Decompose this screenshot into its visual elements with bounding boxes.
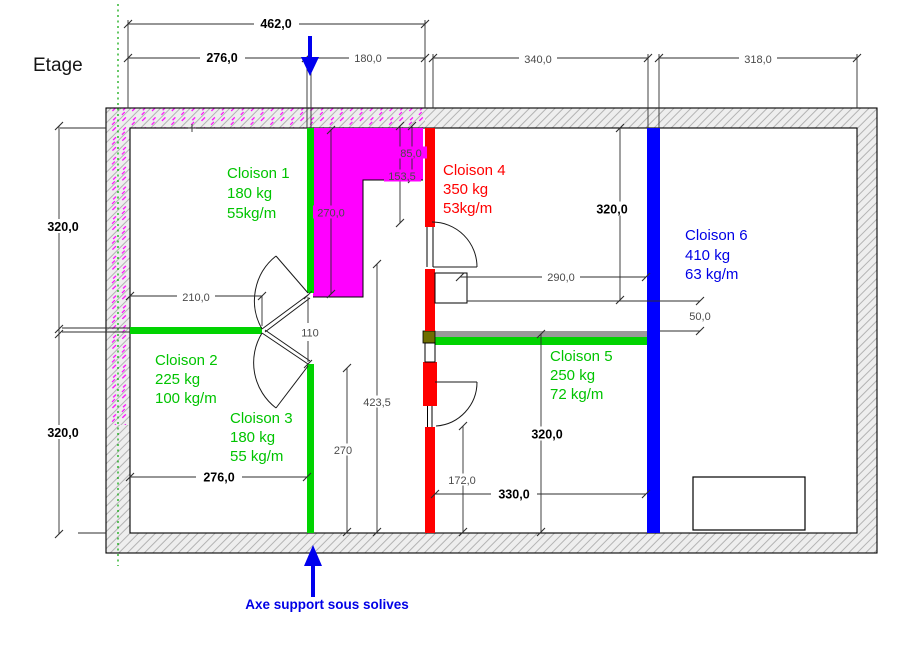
axis-support-label: Axe support sous solives [245,597,409,612]
svg-text:410 kg: 410 kg [685,247,730,264]
left-wall-upper-hatched [106,128,130,425]
cloison-1-label: Cloison 1 180 kg 55kg/m [227,165,290,222]
dim-top-left: 276,0 [200,50,245,66]
dim-room1-height: 270,0 [313,206,350,220]
svg-text:225 kg: 225 kg [155,371,200,388]
dim-left-lower: 320,0 [40,425,86,440]
svg-text:55kg/m: 55kg/m [227,205,276,222]
svg-text:350 kg: 350 kg [443,181,488,198]
svg-text:290,0: 290,0 [547,272,575,284]
dimension-ticks [55,20,861,538]
cloison-4-wall-seg3 [423,362,437,406]
dim-door-gap: 110 [297,326,323,340]
cloison-4-label: Cloison 4 350 kg 53kg/m [443,162,506,217]
svg-text:72 kg/m: 72 kg/m [550,386,603,403]
svg-text:63 kg/m: 63 kg/m [685,266,738,283]
dim-offset-153: 153,5 [384,170,421,184]
svg-text:320,0: 320,0 [531,428,562,442]
svg-text:340,0: 340,0 [524,54,552,66]
svg-text:210,0: 210,0 [182,292,210,304]
svg-text:172,0: 172,0 [448,475,476,487]
cloison-3-label: Cloison 3 180 kg 55 kg/m [230,410,293,465]
door-cloison4-lower [435,382,477,426]
floor-plan-page: 462,0 276,0 180,0 340,0 318,0 320,0 320,… [0,0,911,650]
svg-text:53kg/m: 53kg/m [443,200,492,217]
svg-text:180 kg: 180 kg [230,429,275,446]
dim-top-right: 340,0 [519,52,557,66]
magenta-zone-column [313,180,363,297]
dim-top-total: 462,0 [254,16,299,32]
dim-top-far-right: 318,0 [739,52,777,66]
svg-text:330,0: 330,0 [498,488,529,502]
fixture-box-center [435,273,467,303]
svg-text:110: 110 [301,328,319,340]
dim-room1-width: 210,0 [177,291,215,305]
svg-text:Cloison 4: Cloison 4 [443,162,506,179]
cloison-3-wall [307,364,314,533]
svg-text:276,0: 276,0 [206,51,237,65]
cloison-5-label: Cloison 5 250 kg 72 kg/m [550,348,613,403]
cloison-2-wall [130,327,262,334]
dim-width-290: 290,0 [542,271,580,285]
svg-text:423,5: 423,5 [363,397,391,409]
doors [254,222,477,426]
door-cloison4-upper [432,222,477,267]
dimension-labels: 462,0 276,0 180,0 340,0 318,0 320,0 320,… [40,16,777,502]
svg-text:270: 270 [334,445,352,457]
cloison-5-wall [435,337,648,345]
dim-offset-50: 50,0 [689,311,710,323]
cloison-4-wall-seg4 [425,427,435,533]
cloison-4-wall-seg2 [425,269,435,331]
svg-text:50,0: 50,0 [689,311,710,323]
cloison-6-label: Cloison 6 410 kg 63 kg/m [685,227,748,283]
svg-text:180 kg: 180 kg [227,185,272,202]
dim-offset-85: 85,0 [396,147,427,161]
svg-text:276,0: 276,0 [203,471,234,485]
svg-text:100 kg/m: 100 kg/m [155,390,217,407]
dim-width-330: 330,0 [491,487,537,502]
svg-text:180,0: 180,0 [354,53,382,65]
top-axis-arrow-icon [301,36,319,76]
svg-text:Cloison 2: Cloison 2 [155,352,218,369]
dim-height-423: 423,5 [359,396,396,410]
svg-text:Cloison 5: Cloison 5 [550,348,613,365]
floor-plan-drawing: 462,0 276,0 180,0 340,0 318,0 320,0 320,… [0,0,911,650]
dimension-lines [55,20,861,538]
dim-left-upper: 320,0 [40,219,86,234]
svg-text:320,0: 320,0 [47,220,78,234]
cloison-4-opening-frame [425,343,435,362]
dim-bottom-left-width: 276,0 [196,470,242,485]
svg-text:318,0: 318,0 [744,54,772,66]
top-wall-right-hatched [425,108,877,128]
svg-text:55 kg/m: 55 kg/m [230,448,283,465]
svg-text:85,0: 85,0 [400,148,421,160]
dim-door-height-172: 172,0 [444,474,481,488]
svg-text:153,5: 153,5 [388,171,416,183]
right-wall-hatched [857,128,877,533]
top-wall-left-hatched [106,108,425,128]
dim-height-270: 270 [330,444,357,458]
svg-text:Cloison 6: Cloison 6 [685,227,748,244]
dim-top-mid: 180,0 [349,51,387,65]
fixtures [435,273,805,530]
cloison-6-wall [647,128,660,533]
dim-right-upper: 320,0 [589,202,635,217]
fixture-box-bottom-right [693,477,805,530]
svg-text:270,0: 270,0 [317,208,345,220]
post-junction-block [423,331,435,343]
cloison-1-wall [307,128,314,293]
svg-text:Cloison 3: Cloison 3 [230,410,293,427]
cloison-2-label: Cloison 2 225 kg 100 kg/m [155,352,218,407]
dim-room5-height: 320,0 [524,427,570,442]
bottom-wall-hatched [106,533,877,553]
page-title: Etage [33,55,83,76]
svg-text:462,0: 462,0 [260,17,291,31]
svg-text:320,0: 320,0 [596,203,627,217]
svg-text:320,0: 320,0 [47,426,78,440]
svg-text:Cloison 1: Cloison 1 [227,165,290,182]
cloison-4-wall-seg1 [425,128,435,227]
svg-text:250 kg: 250 kg [550,367,595,384]
